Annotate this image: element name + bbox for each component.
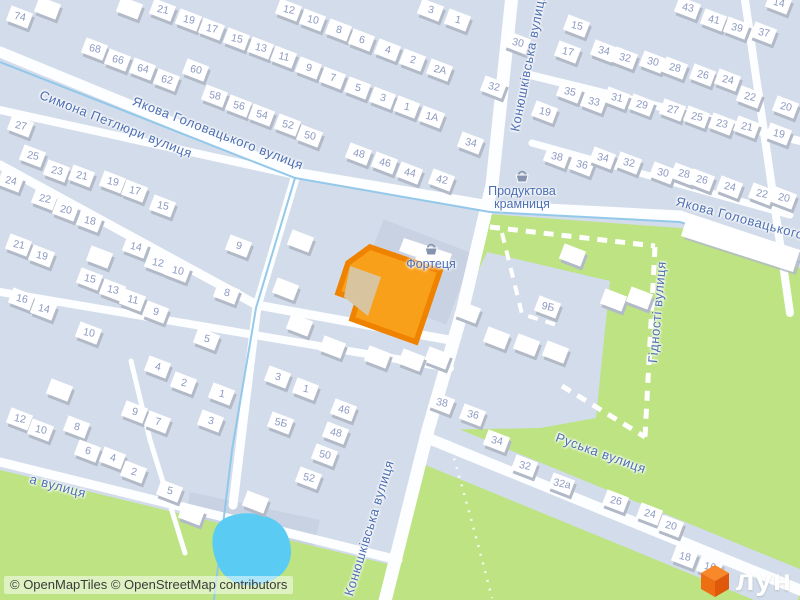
house-number: 56: [232, 99, 246, 113]
house-number: 32: [618, 51, 632, 65]
house-number: 38: [435, 396, 449, 410]
house-number: 23: [715, 117, 729, 131]
poi-label: Фортеця: [406, 258, 456, 271]
house-number: 22: [38, 192, 52, 206]
house-number: 5Б: [274, 416, 289, 430]
house-number: 20: [779, 100, 793, 114]
house-number: 16: [15, 292, 29, 306]
shop-basket-icon: [514, 170, 530, 184]
house-number: 13: [254, 41, 268, 55]
lun-logo-text: лун: [736, 566, 792, 596]
house-number: 11: [277, 50, 290, 64]
house-number: 34: [464, 136, 478, 150]
house-number: 17: [561, 45, 575, 59]
house-number: 11: [126, 293, 139, 307]
house-number: 15: [230, 32, 244, 46]
house-number: 42: [435, 173, 449, 187]
house-number: 20: [59, 203, 73, 217]
house-number: 17: [128, 184, 142, 198]
house-number: 50: [318, 448, 332, 462]
house-number: 10: [306, 13, 320, 27]
house-number: 17: [205, 22, 219, 36]
house-number: 25: [26, 149, 40, 163]
house-number: 15: [156, 199, 170, 213]
house-number: 29: [635, 98, 649, 112]
house-number: 21: [156, 3, 170, 17]
house-number: 28: [677, 167, 691, 181]
house-number: 68: [88, 42, 102, 56]
house-number: 26: [696, 68, 710, 82]
house-number: 23: [50, 164, 64, 178]
house-number: 30: [656, 166, 670, 180]
house-number: 34: [596, 151, 610, 165]
house-number: 33: [587, 95, 601, 109]
house-number: 62: [160, 73, 174, 87]
house-number: 20: [777, 191, 791, 205]
house-number: 52: [281, 118, 295, 132]
house-number: 19: [538, 105, 552, 119]
house-number: 12: [151, 256, 165, 270]
house-number: 1А: [424, 110, 439, 124]
house-number: 20: [664, 519, 678, 533]
poi-marker[interactable]: Продуктовакрамниця: [488, 170, 556, 210]
house-number: 21: [12, 238, 26, 252]
house-number: 21: [740, 120, 754, 134]
house-number: 52: [302, 471, 316, 485]
house-number: 10: [34, 423, 48, 437]
house-number: 32: [518, 459, 532, 473]
house-number: 74: [13, 10, 27, 24]
house-number: 31: [610, 91, 624, 105]
house-number: 15: [570, 19, 584, 33]
house-number: 14: [37, 302, 51, 316]
poi-marker[interactable]: Фортеця: [406, 243, 456, 271]
poi-label: крамниця: [488, 198, 556, 211]
house-number: 26: [609, 494, 623, 508]
house-number: 66: [111, 53, 125, 67]
house-number: 64: [136, 62, 150, 76]
house-number: 2А: [432, 63, 447, 77]
house-number: 9Б: [541, 300, 556, 314]
house-number: 39: [730, 21, 744, 35]
house-number: 14: [129, 240, 143, 254]
house-number: 46: [378, 156, 392, 170]
house-number: 48: [329, 426, 343, 440]
house-number: 21: [75, 169, 89, 183]
house-number: 32: [487, 80, 501, 94]
map-attribution[interactable]: © OpenMapTiles © OpenStreetMap contribut…: [4, 576, 293, 594]
shop-basket-icon: [423, 243, 439, 257]
house-number: 10: [171, 264, 185, 278]
pond: [212, 513, 291, 585]
house-number: 19: [772, 127, 786, 141]
house-number: 48: [352, 147, 366, 161]
house-number: 35: [563, 85, 577, 99]
house-number: 30: [646, 55, 660, 69]
house-number: 15: [83, 272, 97, 286]
house-number: 37: [757, 26, 771, 40]
house-number: 28: [668, 61, 682, 75]
house-number: 19: [35, 249, 49, 263]
house-number: 41: [707, 13, 721, 27]
house-number: 24: [723, 180, 737, 194]
house-number: 13: [106, 283, 120, 297]
house-number: 46: [337, 403, 351, 417]
house-number: 26: [695, 173, 709, 187]
house-number: 24: [4, 174, 18, 188]
house-number: 24: [643, 507, 657, 521]
house-number: 60: [189, 63, 203, 77]
house-number: 36: [466, 408, 480, 422]
house-number: 32: [622, 156, 636, 170]
house-number: 34: [597, 44, 611, 58]
house-number: 18: [83, 214, 97, 228]
house-number: 27: [666, 103, 680, 117]
house-number: 50: [303, 129, 317, 143]
house-number: 43: [681, 1, 695, 15]
house-number: 12: [282, 3, 296, 17]
house-number: 54: [255, 108, 269, 122]
poi-label: Продуктова: [488, 185, 556, 198]
house-number: 22: [755, 187, 769, 201]
house-number: 12: [13, 412, 27, 426]
house-number: 25: [690, 110, 704, 124]
house-number: 34: [490, 434, 504, 448]
house-number: 27: [14, 119, 28, 133]
house-number: 19: [106, 175, 120, 189]
house-number: 24: [721, 73, 735, 87]
lun-cube-icon: [700, 564, 730, 598]
house-number: 18: [678, 550, 692, 564]
house-number: 58: [208, 89, 222, 103]
house-number: 10: [82, 326, 96, 340]
house-number: 22: [743, 90, 757, 104]
house-number: 19: [182, 13, 196, 27]
map-canvas[interactable]: 7468666462605856542119171513121086422А31…: [0, 0, 800, 600]
house-number: 36: [575, 158, 589, 172]
house-number: 44: [403, 166, 417, 180]
lun-logo[interactable]: лун: [700, 564, 792, 598]
house-number: 38: [550, 150, 564, 164]
